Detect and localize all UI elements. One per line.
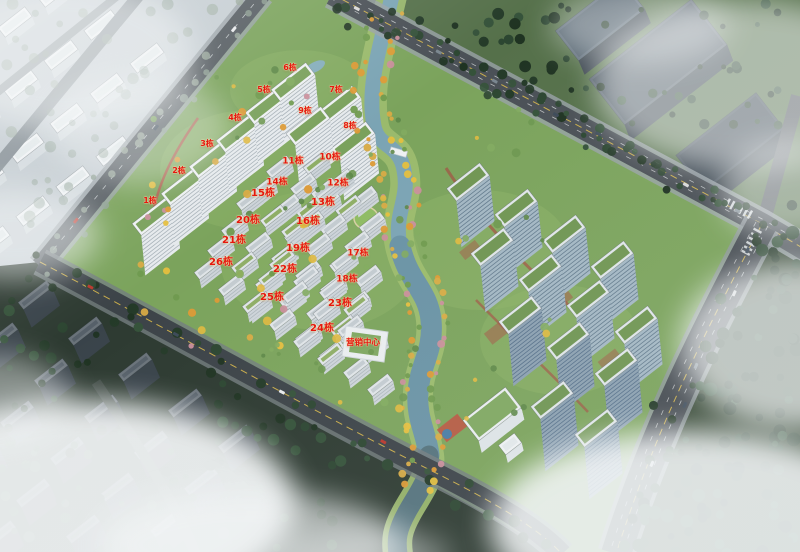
- aerial-masterplan-rendering: 1栋2栋3栋4栋5栋6栋7栋8栋9栋10栋11栋12栋13栋14栋15栋16栋1…: [0, 0, 800, 552]
- haze-clouds: [0, 0, 800, 552]
- scene-svg: [0, 0, 800, 552]
